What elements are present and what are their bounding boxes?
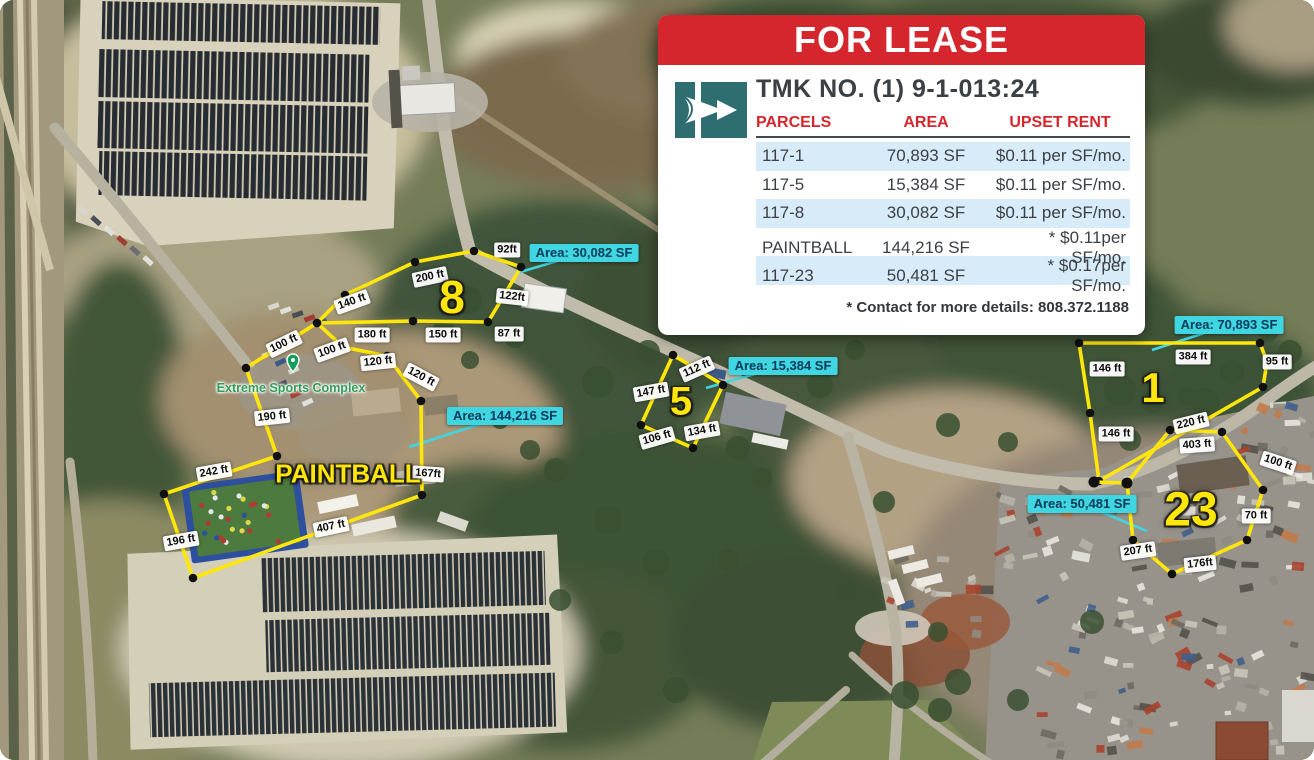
parcel-table-header: PARCELS AREA UPSET RENT [756, 113, 1130, 133]
table-row: 117-2350,481 SF* $0.17per SF/mo. [756, 256, 1130, 285]
cell-rent: $0.11 per SF/mo. [990, 146, 1130, 166]
cell-area: 50,481 SF [862, 266, 990, 286]
parcel-table: PARCELS AREA UPSET RENT 117-170,893 SF$0… [756, 113, 1130, 285]
cell-rent: $0.11 per SF/mo. [990, 203, 1130, 223]
cell-area: 144,216 SF [862, 238, 990, 258]
cell-parcel: 117-8 [756, 203, 862, 223]
aerial-site-map: 92ft200 ft140 ft122ft180 ft150 ft87 ft10… [0, 0, 1314, 760]
table-row: 117-170,893 SF$0.11 per SF/mo. [756, 142, 1130, 171]
col-upset-rent: UPSET RENT [990, 114, 1130, 132]
col-parcels: PARCELS [756, 114, 862, 132]
cell-parcel: 117-5 [756, 175, 862, 195]
contact-footnote: * Contact for more details: 808.372.1188 [846, 299, 1129, 316]
cell-parcel: 117-1 [756, 146, 862, 166]
cell-rent: * $0.17per SF/mo. [990, 256, 1130, 296]
for-lease-card: FOR LEASE TMK NO. (1) 9-1-013:24 PARCELS… [658, 15, 1145, 335]
header-rule [756, 136, 1130, 138]
teal-arrow-logo-icon [675, 82, 747, 138]
railroad-corridor [0, 0, 64, 760]
cell-area: 70,893 SF [862, 146, 990, 166]
table-row: 117-830,082 SF$0.11 per SF/mo. [756, 199, 1130, 228]
cell-rent: $0.11 per SF/mo. [990, 175, 1130, 195]
solar-farm-south [125, 534, 567, 749]
cell-parcel: PAINTBALL [756, 238, 862, 258]
cell-area: 30,082 SF [862, 203, 990, 223]
paintball-arena [181, 470, 309, 564]
table-row: 117-515,384 SF$0.11 per SF/mo. [756, 171, 1130, 200]
col-area: AREA [862, 114, 990, 132]
tmk-number: TMK NO. (1) 9-1-013:24 [756, 75, 1039, 104]
cell-parcel: 117-23 [756, 266, 862, 286]
parcel-table-rows: 117-170,893 SF$0.11 per SF/mo.117-515,38… [756, 142, 1130, 285]
table-row: PAINTBALL144,216 SF* $0.11per SF/mo. [756, 228, 1130, 257]
for-lease-banner: FOR LEASE [658, 15, 1145, 65]
cell-area: 15,384 SF [862, 175, 990, 195]
